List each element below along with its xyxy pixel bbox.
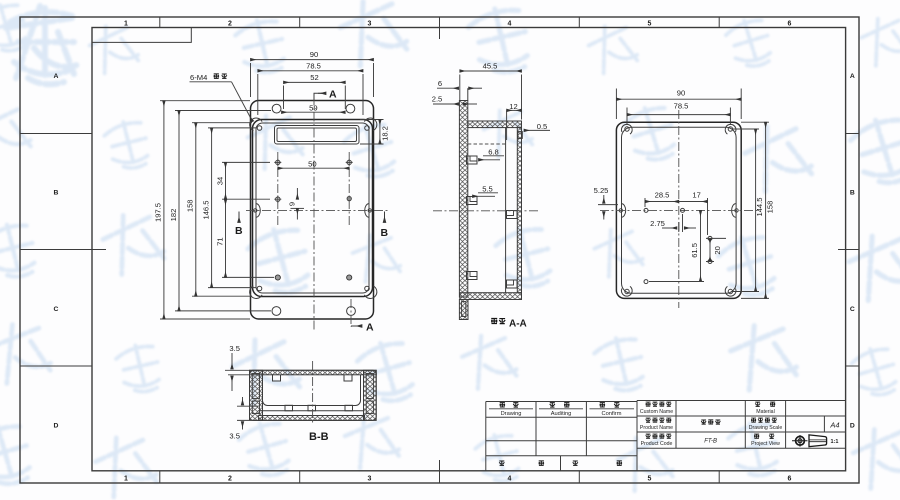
svg-text:61.5: 61.5: [690, 243, 699, 258]
svg-text:Drawing Scale: Drawing Scale: [749, 425, 783, 431]
svg-text:12: 12: [509, 102, 517, 111]
svg-text:A: A: [850, 73, 855, 80]
svg-text:A: A: [54, 73, 59, 80]
svg-text:A4: A4: [829, 421, 839, 430]
svg-text:B: B: [235, 225, 243, 237]
svg-text:20: 20: [713, 246, 722, 254]
svg-text:Product Name: Product Name: [640, 425, 673, 431]
svg-text:6-M4: 6-M4: [190, 73, 207, 82]
svg-text:Auditing: Auditing: [551, 411, 572, 417]
svg-text:5.5: 5.5: [482, 185, 493, 194]
svg-text:158: 158: [186, 199, 195, 212]
svg-text:3.5: 3.5: [229, 344, 240, 353]
svg-text:A: A: [366, 322, 374, 334]
svg-text:146.5: 146.5: [201, 200, 210, 219]
svg-text:0.5: 0.5: [537, 122, 548, 131]
svg-text:182: 182: [169, 209, 178, 222]
svg-text:2: 2: [228, 21, 232, 28]
svg-text:158: 158: [765, 201, 774, 214]
svg-text:A: A: [329, 88, 337, 100]
svg-text:34: 34: [215, 177, 224, 185]
svg-text:Project View: Project View: [751, 441, 780, 447]
svg-text:C: C: [54, 306, 59, 313]
svg-text:78.5: 78.5: [306, 61, 321, 70]
svg-text:D: D: [850, 423, 855, 430]
svg-text:B: B: [850, 190, 855, 197]
svg-text:D: D: [54, 423, 59, 430]
svg-text:A-A: A-A: [509, 319, 527, 330]
svg-text:2.5: 2.5: [432, 95, 443, 104]
svg-text:Drawing: Drawing: [501, 411, 522, 417]
svg-text:Product Code: Product Code: [641, 441, 673, 447]
svg-text:9: 9: [287, 202, 296, 206]
svg-text:FT-B: FT-B: [704, 439, 717, 445]
svg-text:5: 5: [648, 476, 652, 483]
svg-text:90: 90: [310, 50, 318, 59]
svg-text:B: B: [54, 190, 59, 197]
svg-text:6: 6: [788, 21, 792, 28]
svg-text:90: 90: [677, 88, 685, 97]
svg-text:59: 59: [309, 104, 317, 113]
svg-text:5: 5: [648, 21, 652, 28]
svg-text:6: 6: [788, 476, 792, 483]
svg-text:6.8: 6.8: [488, 148, 499, 157]
svg-text:45.5: 45.5: [483, 62, 498, 71]
svg-text:50: 50: [308, 159, 316, 168]
svg-text:3: 3: [368, 21, 372, 28]
svg-text:1: 1: [124, 476, 128, 483]
svg-text:28.5: 28.5: [655, 191, 670, 200]
svg-text:71: 71: [215, 237, 224, 245]
svg-text:6: 6: [438, 79, 442, 88]
svg-text:17: 17: [692, 191, 700, 200]
svg-text:B: B: [381, 227, 389, 239]
svg-text:Confirm: Confirm: [602, 411, 622, 417]
svg-text:2: 2: [228, 476, 232, 483]
svg-text:3.5: 3.5: [229, 432, 240, 441]
svg-text:18.2: 18.2: [381, 126, 390, 141]
svg-text:4: 4: [508, 21, 512, 28]
svg-text:4: 4: [508, 476, 512, 483]
svg-text:C: C: [850, 306, 855, 313]
svg-text:3: 3: [368, 476, 372, 483]
svg-text:Material: Material: [756, 409, 774, 415]
svg-text:197.5: 197.5: [154, 203, 163, 222]
svg-text:5.25: 5.25: [594, 186, 609, 195]
svg-text:1:1: 1:1: [831, 439, 839, 445]
svg-text:52: 52: [310, 73, 318, 82]
svg-text:1: 1: [124, 21, 128, 28]
svg-text:Custom Name: Custom Name: [640, 409, 673, 415]
svg-text:2.75: 2.75: [650, 219, 665, 228]
svg-text:78.5: 78.5: [674, 101, 689, 110]
svg-text:B-B: B-B: [309, 431, 329, 443]
svg-text:144.5: 144.5: [755, 197, 764, 216]
